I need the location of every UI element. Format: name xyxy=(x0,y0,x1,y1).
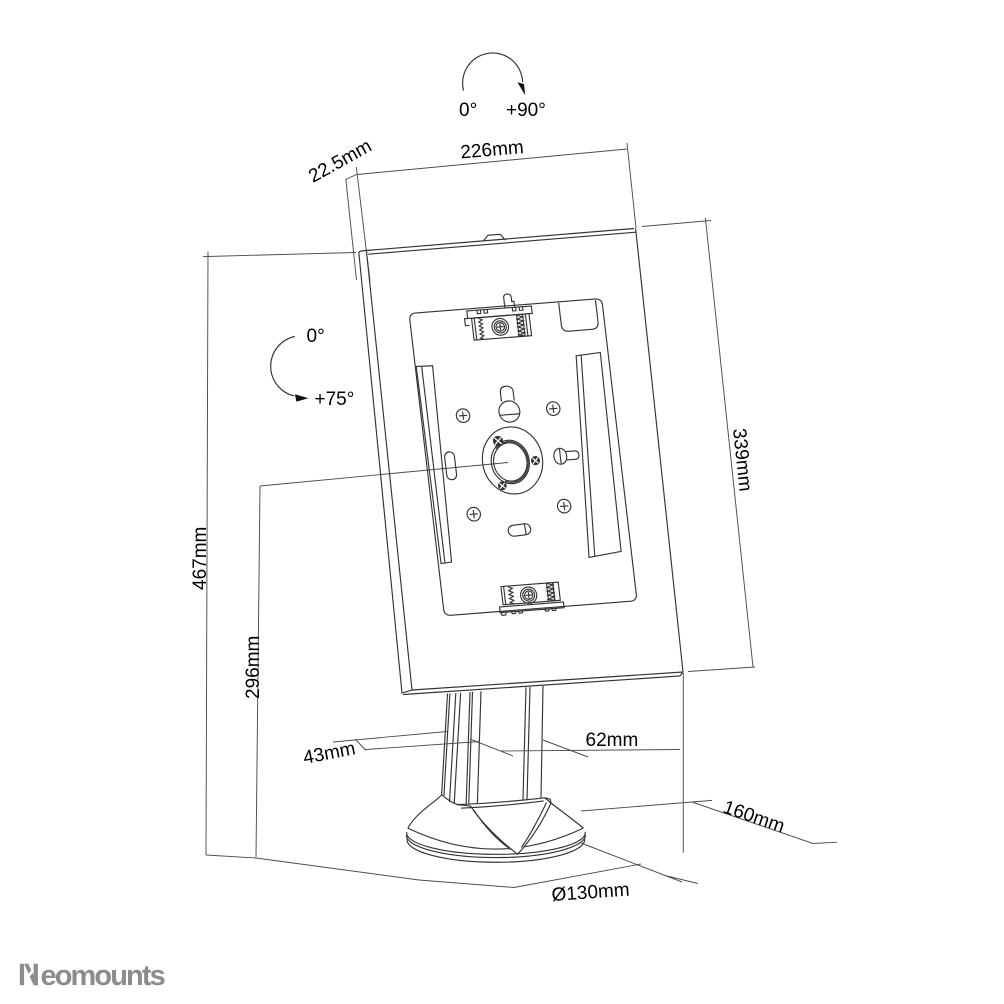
svg-text:+75°: +75° xyxy=(315,389,355,410)
svg-text:+90°: +90° xyxy=(506,100,546,121)
svg-text:eomounts: eomounts xyxy=(41,960,165,992)
svg-text:467mm: 467mm xyxy=(190,527,211,590)
svg-text:0°: 0° xyxy=(307,326,325,347)
svg-text:62mm: 62mm xyxy=(586,730,639,751)
svg-text:0°: 0° xyxy=(459,100,477,121)
svg-text:296mm: 296mm xyxy=(243,636,264,699)
